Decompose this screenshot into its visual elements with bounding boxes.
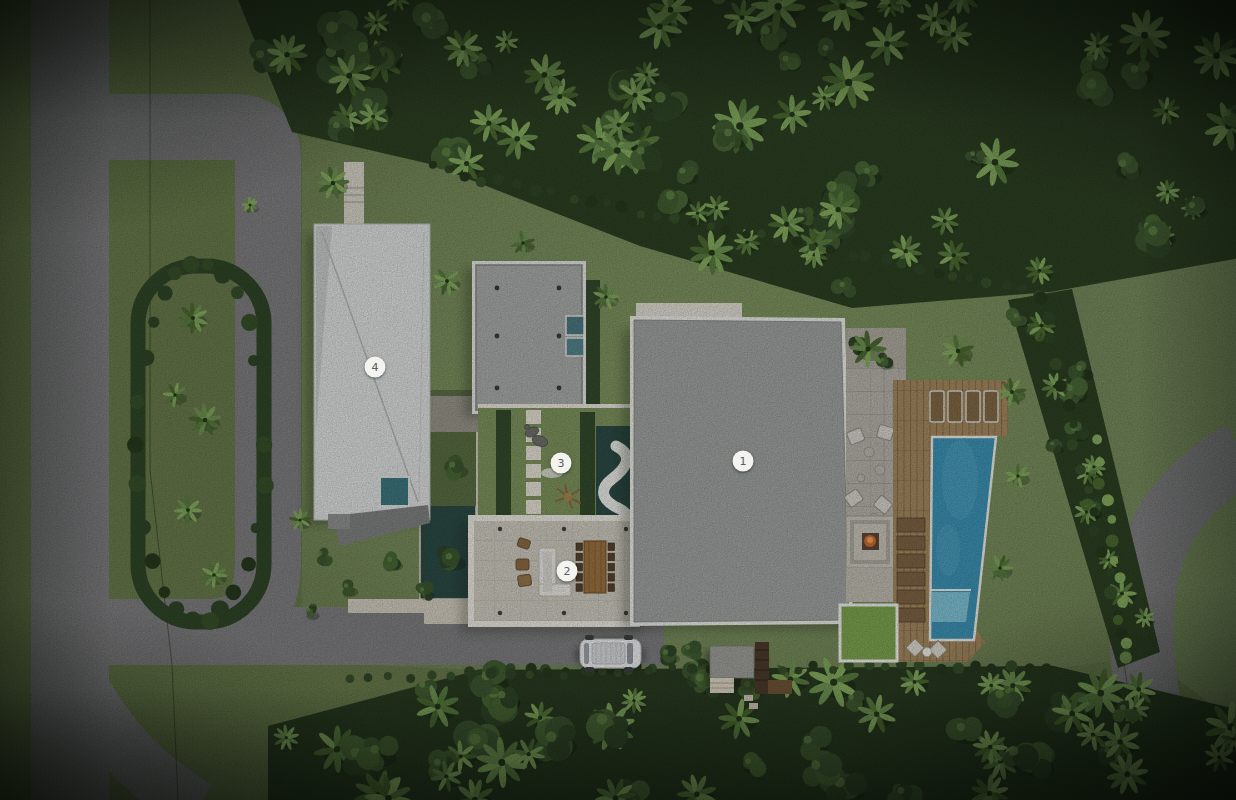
marker-2[interactable]: 2 [557, 561, 578, 582]
marker-4[interactable]: 4 [365, 357, 386, 378]
film-grain [0, 0, 1236, 800]
site-plan-scene [0, 0, 1236, 800]
site-plan: 1234 [0, 0, 1236, 800]
marker-3[interactable]: 3 [551, 453, 572, 474]
marker-1[interactable]: 1 [733, 451, 754, 472]
